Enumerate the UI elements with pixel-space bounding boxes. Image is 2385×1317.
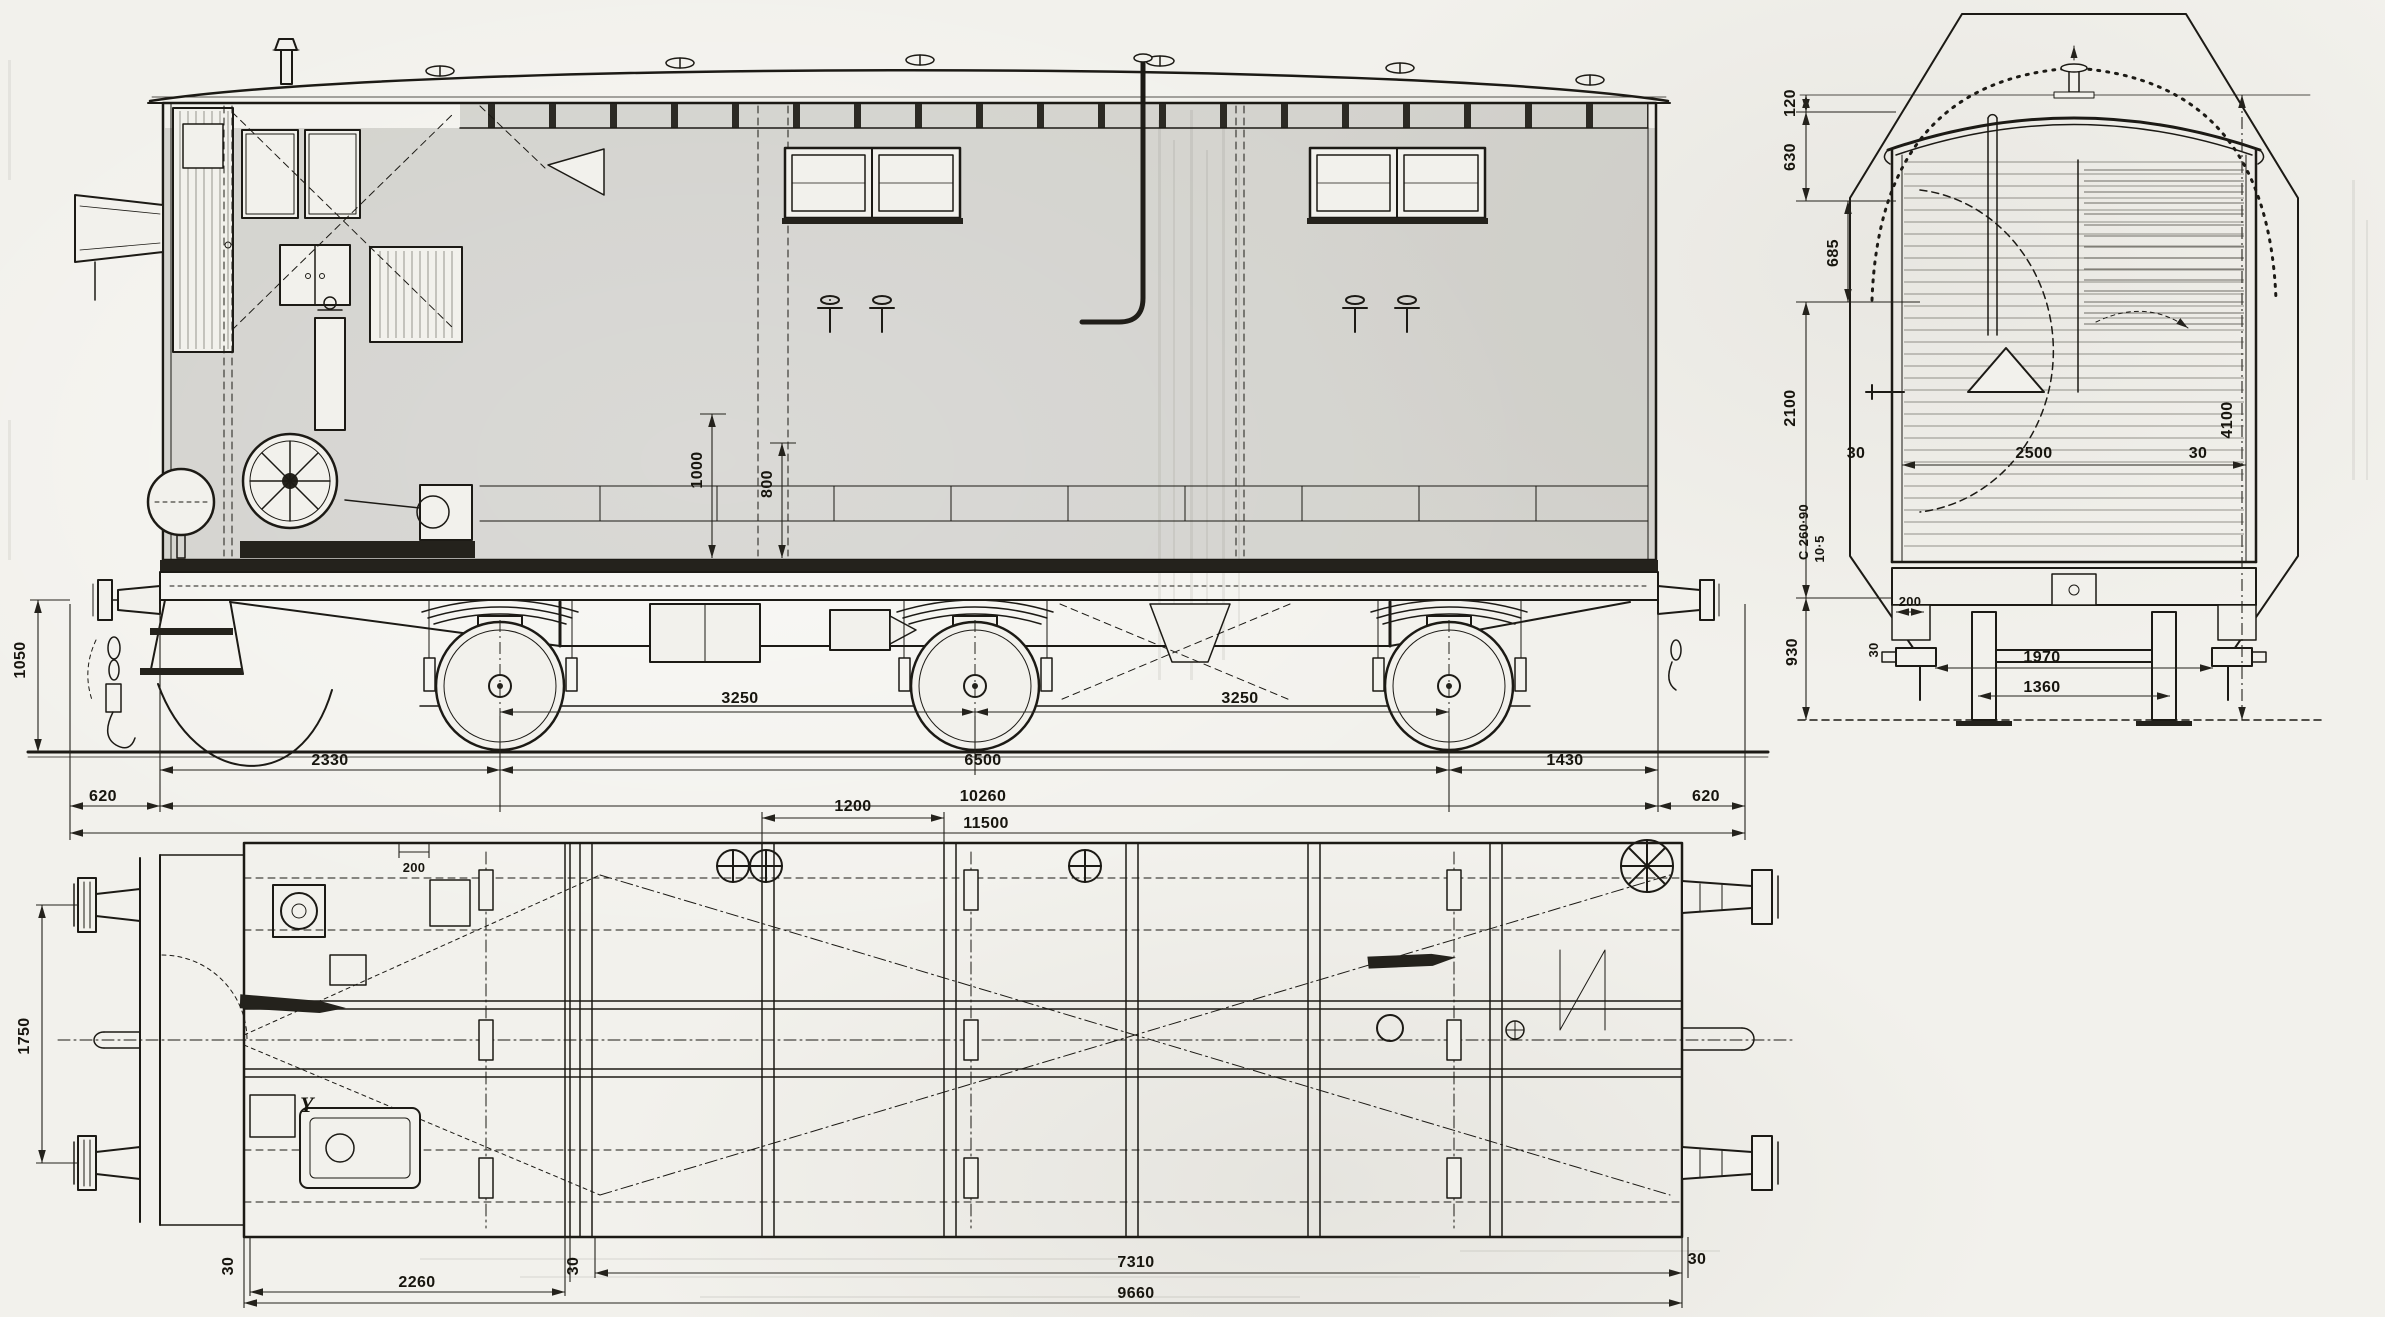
dim-axle-span-2: 3250 [1221, 690, 1258, 707]
plan-buffer-right-upper [1682, 870, 1778, 924]
dim-wall-thk-right: 30 [2189, 445, 2208, 462]
dim-axle-span-1: 3250 [721, 690, 758, 707]
dim-frame-to-rail: 930 [1784, 638, 1801, 666]
dim-interior-width: 2500 [2015, 445, 2052, 462]
roof-vent-section [2054, 46, 2094, 98]
dim-frame-profile: C 260·90 [1796, 504, 1811, 560]
wall-tap [1866, 385, 1904, 399]
plan-buffer-right-lower [1682, 1136, 1778, 1190]
dim-cant-height: 685 [1825, 239, 1842, 267]
blueprint-scan-page: 3250 3250 2330 6500 1430 620 10260 620 1… [0, 0, 2385, 1317]
plan-door-swing [162, 955, 247, 1040]
dim-wall-h1: 1000 [689, 451, 706, 488]
dim-buffer-height: 1050 [12, 641, 29, 678]
handbrake-wheels [717, 840, 1673, 892]
plan-buffer-left-upper [74, 878, 140, 932]
window-group-b [1307, 148, 1488, 224]
dim-axle-to-end: 1430 [1546, 752, 1583, 769]
brake-hose [158, 684, 332, 766]
dim-frame-length: 9660 [1117, 1285, 1154, 1302]
end-awning [75, 195, 163, 300]
wall-cabinet [280, 245, 350, 305]
dim-roof-rise: 120 [1782, 89, 1799, 117]
dim-buffer-left: 620 [89, 788, 117, 805]
dim-journal-width: 200 [1899, 594, 1922, 609]
dim-journal-centers: 1970 [2023, 649, 2060, 666]
dim-wall-thk-a: 30 [220, 1257, 237, 1276]
side-elevation-view: 3250 3250 2330 6500 1430 620 10260 620 1… [12, 39, 1768, 840]
dim-buffer-right: 620 [1692, 788, 1720, 805]
section-roof-outer [1888, 118, 2260, 150]
buffer-right [1658, 580, 1719, 690]
brake-bracket [1150, 604, 1230, 662]
dim-wall-h2: 800 [759, 470, 776, 498]
dim-wall-height: 2100 [1782, 389, 1799, 426]
dim-wall-thk-left: 30 [1847, 445, 1866, 462]
solebar [160, 560, 1658, 572]
clerestory-band [460, 104, 1648, 128]
coupling-left [88, 637, 135, 748]
dim-end-bay-length: 2260 [398, 1274, 435, 1291]
dim-length-over-buffers: 11500 [963, 815, 1009, 832]
dim-wall-thk-c: 30 [1688, 1251, 1707, 1268]
plan-buffer-left-lower [74, 1136, 140, 1190]
plan-view: Y [16, 798, 1795, 1308]
dim-overall-height: 4100 [2219, 401, 2236, 438]
step-iron-right [2218, 605, 2256, 640]
section-roof-inner [1896, 125, 2252, 156]
louvre-door [370, 247, 462, 342]
dim-end-to-axle: 2330 [311, 752, 348, 769]
dim-main-bay-length: 7310 [1117, 1254, 1154, 1271]
wagon-three-view-drawing: 3250 3250 2330 6500 1430 620 10260 620 1… [0, 0, 2385, 1317]
dim-journal-plate: 30 [1866, 642, 1881, 657]
step-iron-left [1892, 605, 1930, 640]
plan-coupling-right [1682, 1028, 1754, 1050]
dim-hatch-width: 200 [403, 860, 426, 875]
dim-buffer-centers: 1750 [16, 1017, 33, 1054]
stove-chimney [273, 39, 299, 84]
plan-machinery: Y [162, 880, 470, 1188]
buffer-left [93, 580, 160, 620]
dim-body-length: 10260 [960, 788, 1007, 805]
side-brake-cylinder [830, 610, 916, 650]
dim-frame-web: 10·5 [1812, 535, 1827, 562]
dim-roof-height: 630 [1782, 143, 1799, 171]
roof-arc [150, 70, 1668, 101]
window-group-a [782, 148, 963, 224]
dim-panel-width: 1200 [834, 798, 871, 815]
dim-wall-thk-b: 30 [565, 1257, 582, 1276]
cross-section-view: 120 630 685 2100 C 260·90 10·5 930 30 25… [1782, 14, 2322, 726]
dim-back-to-back: 1360 [2023, 679, 2060, 696]
dim-axle-base-total: 6500 [964, 752, 1001, 769]
